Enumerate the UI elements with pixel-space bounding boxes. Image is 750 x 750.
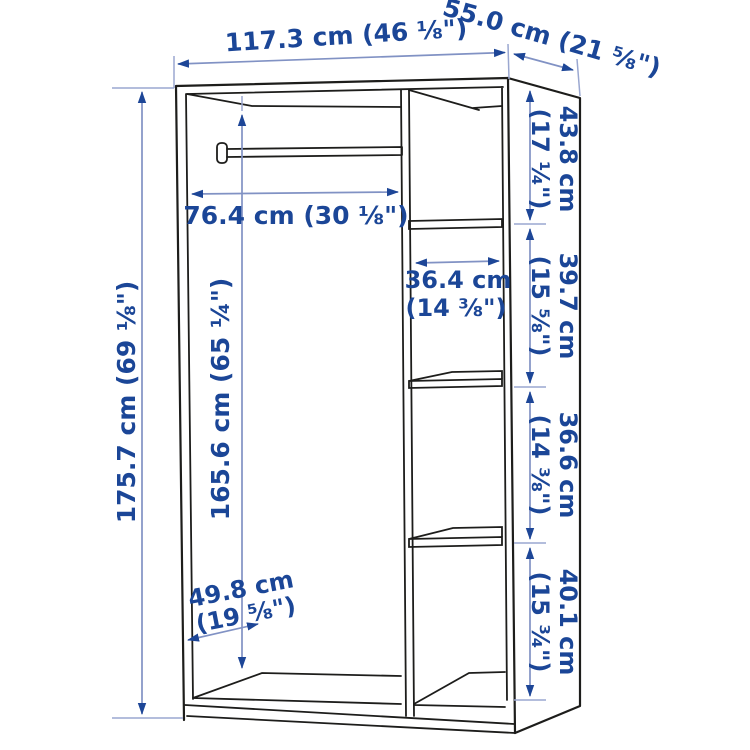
- svg-text:39.7 cm: 39.7 cm: [554, 253, 582, 360]
- label-shelf-width: 36.4 cm (14 ⅜"): [405, 266, 512, 322]
- wardrobe-dimension-diagram: 117.3 cm (46 ⅛") 55.0 cm (21 ⅝") 175.7 c…: [0, 0, 750, 750]
- svg-text:117.3 cm (46 ⅛"): 117.3 cm (46 ⅛"): [224, 14, 468, 58]
- svg-text:40.1 cm: 40.1 cm: [554, 569, 582, 676]
- divider-panel: [401, 90, 414, 716]
- label-depth-top: 55.0 cm (21 ⅝"): [440, 0, 664, 82]
- label-section-3: 36.6 cm (14 ⅜"): [526, 412, 582, 519]
- label-width-top: 117.3 cm (46 ⅛"): [224, 14, 468, 58]
- shelf-1: [409, 219, 502, 229]
- label-section-1: 43.8 cm (17 ¼"): [526, 106, 582, 213]
- wardrobe-outline: [176, 78, 580, 733]
- svg-text:36.6 cm: 36.6 cm: [554, 412, 582, 519]
- label-interior-depth: 49.8 cm (19 ⅝"): [186, 565, 301, 638]
- dim-line-depth-top: [514, 54, 573, 70]
- shelf-2: [409, 371, 502, 388]
- svg-text:(17 ¼"): (17 ¼"): [526, 108, 554, 209]
- clothes-rail: [217, 143, 402, 163]
- shelf-3: [409, 527, 502, 547]
- dim-line-rail-width: [192, 192, 398, 194]
- label-section-2: 39.7 cm (15 ⅝"): [526, 253, 582, 360]
- wardrobe-dimension-page: 117.3 cm (46 ⅛") 55.0 cm (21 ⅝") 175.7 c…: [0, 0, 750, 750]
- svg-text:165.6 cm (65 ¼"): 165.6 cm (65 ¼"): [206, 278, 235, 521]
- svg-text:(14 ⅜"): (14 ⅜"): [405, 294, 506, 322]
- svg-text:76.4 cm (30 ⅛"): 76.4 cm (30 ⅛"): [183, 201, 408, 230]
- label-interior-height: 165.6 cm (65 ¼"): [206, 278, 235, 521]
- label-height-left: 175.7 cm (69 ⅛"): [112, 281, 141, 524]
- svg-text:175.7 cm (69 ⅛"): 175.7 cm (69 ⅛"): [112, 281, 141, 524]
- dimension-labels: 117.3 cm (46 ⅛") 55.0 cm (21 ⅝") 175.7 c…: [112, 0, 664, 675]
- svg-text:(14 ⅜"): (14 ⅜"): [526, 414, 554, 515]
- plinth: [185, 705, 515, 733]
- label-rail-width: 76.4 cm (30 ⅛"): [183, 201, 408, 230]
- interior-floor: [193, 672, 505, 707]
- svg-text:(15 ¾"): (15 ¾"): [526, 571, 554, 672]
- dim-line-shelf-width: [416, 261, 499, 263]
- svg-text:43.8 cm: 43.8 cm: [554, 106, 582, 213]
- svg-text:(15 ⅝"): (15 ⅝"): [526, 255, 554, 356]
- svg-text:55.0 cm (21 ⅝"): 55.0 cm (21 ⅝"): [440, 0, 664, 82]
- svg-text:36.4 cm: 36.4 cm: [405, 266, 512, 294]
- label-section-4: 40.1 cm (15 ¾"): [526, 569, 582, 676]
